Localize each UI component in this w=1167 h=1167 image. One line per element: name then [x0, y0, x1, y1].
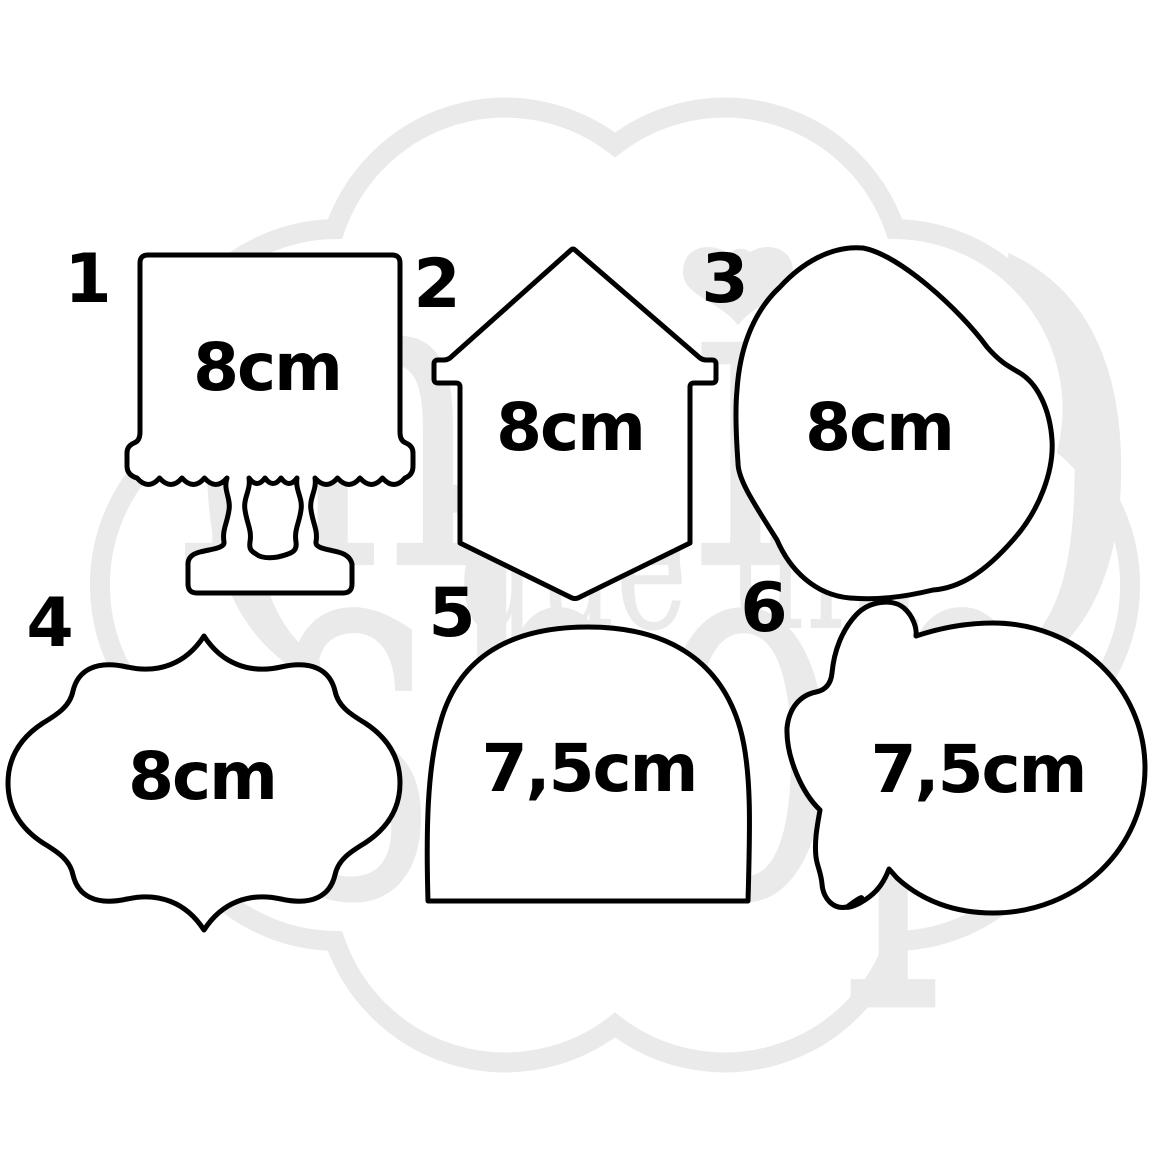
- size-label-4: 8cm: [128, 738, 276, 815]
- size-label-6: 7,5cm: [871, 731, 1086, 808]
- shape-number-3: 3: [701, 240, 748, 319]
- diagram-canvas: ( mais ) que um shop: [0, 0, 1167, 1167]
- shape-number-2: 2: [413, 245, 460, 324]
- cake-stand-pedestal-hole: [245, 478, 302, 558]
- size-label-5: 7,5cm: [482, 730, 697, 807]
- shape-number-1: 1: [64, 240, 111, 319]
- size-label-3: 8cm: [805, 389, 953, 466]
- cutter-size-diagram: ( mais ) que um shop: [0, 0, 1167, 1167]
- shape-number-6: 6: [740, 569, 787, 648]
- size-label-2: 8cm: [496, 389, 644, 466]
- shape-number-5: 5: [428, 574, 475, 653]
- shape-number-4: 4: [26, 584, 73, 663]
- size-label-1: 8cm: [193, 329, 341, 406]
